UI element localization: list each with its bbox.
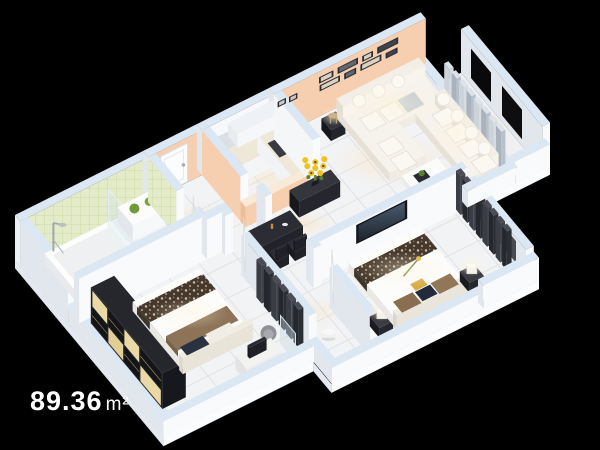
area-value: 89.36 xyxy=(30,386,103,416)
area-label: 89.36m² xyxy=(30,386,130,417)
stool xyxy=(322,329,336,341)
screenshot-canvas: 89.36m² xyxy=(0,0,600,450)
floor-plan-3d-render xyxy=(0,0,600,450)
area-unit: m² xyxy=(106,394,130,415)
